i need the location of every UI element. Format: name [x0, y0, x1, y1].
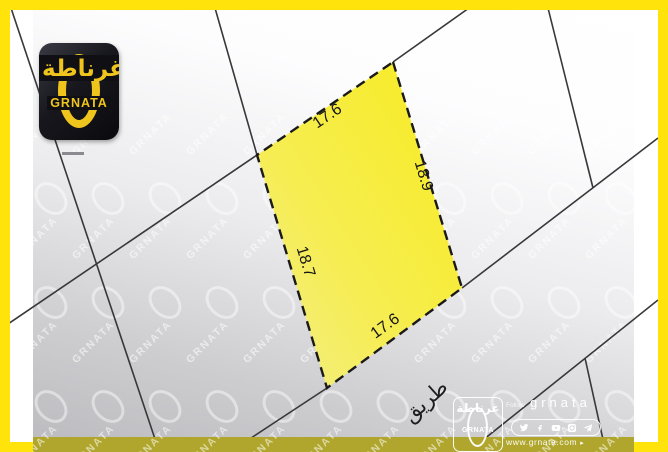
road-edge-line — [242, 388, 327, 442]
watermark-mark: GRNATA — [241, 437, 289, 452]
watermark-mark: GRNATA — [70, 437, 118, 452]
follow-label: Follow — [506, 402, 525, 409]
logo-latin-text: GRNATA — [39, 96, 119, 110]
footer-logo-latin-text: GRNATA — [454, 427, 502, 434]
watermark-mark: GRNATA — [127, 437, 175, 452]
cadastral-line — [10, 155, 257, 324]
watermark-mark: GRNATA — [298, 437, 346, 452]
cursor-arrow-icon: ▸ — [580, 440, 584, 447]
road-edge-line — [462, 138, 658, 288]
youtube-icon[interactable] — [551, 423, 561, 433]
footer-brand: غرناطة GRNATA Follow grnata www.grnata.c… — [440, 385, 662, 452]
social-icons-pill — [511, 419, 601, 436]
plot-boundary — [257, 62, 462, 388]
twitter-icon[interactable] — [519, 423, 529, 433]
map-canvas: GRNATAGRNATAGRNATAGRNATAGRNATAGRNATAGRNA… — [10, 10, 658, 442]
watermark-mark: GRNATA — [33, 437, 60, 452]
logo-underline — [62, 152, 84, 155]
footer-logo-arabic-text: غرناطة — [454, 401, 502, 415]
cadastral-line — [548, 10, 593, 188]
footer-logo-badge: غرناطة GRNATA — [453, 397, 503, 452]
watermark-mark: GRNATA — [184, 437, 232, 452]
cadastral-line — [393, 10, 469, 62]
watermark-mark: GRNATA — [355, 437, 403, 452]
yellow-frame: GRNATAGRNATAGRNATAGRNATAGRNATAGRNATAGRNA… — [0, 0, 668, 452]
telegram-icon[interactable] — [583, 423, 593, 433]
social-handle[interactable]: grnata — [530, 395, 591, 410]
instagram-icon[interactable] — [567, 423, 577, 433]
website-link[interactable]: www.grnata.com▸ — [506, 437, 584, 447]
cadastral-line — [215, 10, 257, 155]
facebook-icon[interactable] — [535, 423, 545, 433]
logo-arabic-text: غرناطة — [39, 56, 119, 81]
brand-logo-badge: غرناطة GRNATA — [39, 43, 119, 140]
